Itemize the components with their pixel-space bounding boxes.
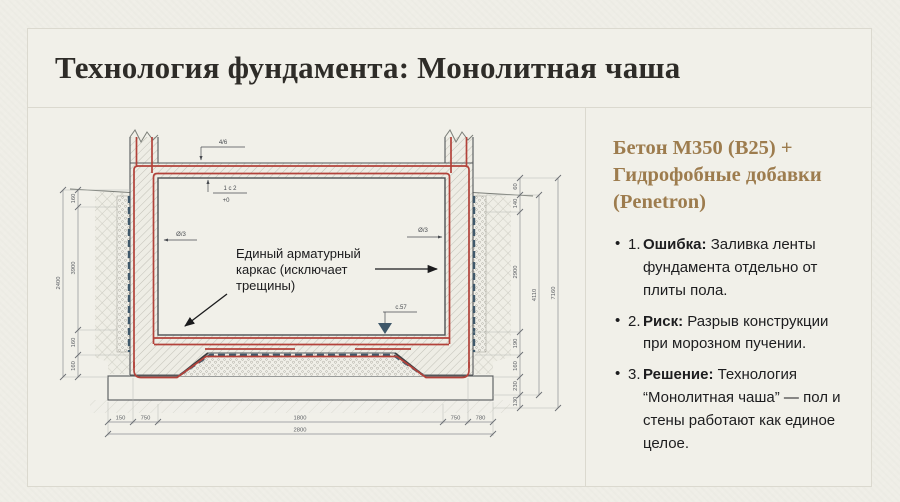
right-panel: Бетон М350 (В25) + Гидрофобные добавки (… [586, 108, 873, 487]
dim-bottom-total: 2800 [294, 428, 307, 434]
dim-left-1: 3900 [71, 262, 77, 275]
annotation-line-3: трещины) [236, 278, 295, 293]
bullet-lead: Риск: [643, 313, 683, 330]
annotation-line-1: Единый арматурный [236, 246, 361, 261]
bullet-lead: Решение: [643, 366, 713, 383]
mark-floor-level: с.57 [395, 305, 407, 311]
panel-heading: Бетон М350 (В25) + Гидрофобные добавки (… [613, 135, 855, 216]
dim-right-4: 160 [513, 361, 519, 371]
dim-right-6: 130 [513, 397, 519, 407]
bullet-icon: • [615, 310, 620, 333]
dim-bottom-3: 750 [451, 416, 461, 422]
bullet-number: 2. [628, 311, 641, 334]
mark-level-top: 1 с 2 [223, 186, 237, 192]
panel-heading-line-1: Бетон М350 (В25) + [613, 135, 855, 162]
annotation-rebar-cage: Единый арматурный каркас (исключает трещ… [185, 246, 437, 326]
dim-bottom-1: 750 [141, 416, 151, 422]
panel-heading-line-2: Гидрофобные добавки [613, 162, 855, 189]
dim-left-3: 160 [71, 361, 77, 371]
dim-right-3: 190 [513, 339, 519, 349]
bullet-icon: • [615, 363, 620, 386]
subsoil-layer [90, 400, 510, 413]
dim-left-2: 160 [71, 338, 77, 348]
dim-left-total: 2400 [56, 277, 62, 290]
dim-right-0: 60 [513, 183, 519, 189]
footing-slab [108, 376, 493, 400]
dim-right-5: 230 [513, 381, 519, 391]
panel-heading-line-3: (Penetron) [613, 189, 855, 216]
list-item: • 3. Решение: Технология “Монолитная чаш… [613, 364, 855, 455]
mark-wall-right: Ø/3 [418, 228, 428, 234]
bullet-icon: • [615, 233, 620, 256]
dim-bottom-2: 1800 [294, 416, 307, 422]
dim-right-mid-total: 4110 [532, 289, 538, 301]
dim-bottom-0: 150 [116, 416, 126, 422]
dim-right-total: 7160 [551, 287, 557, 300]
dim-right-2: 2900 [513, 266, 519, 279]
bullet-number: 3. [628, 364, 641, 387]
page-title: Технология фундамента: Монолитная чаша [55, 50, 681, 86]
foundation-section-drawing: 160 3900 160 160 2400 60 140 2900 190 16… [55, 112, 585, 464]
mark-level-zero: +0 [223, 198, 231, 204]
bullet-lead: Ошибка: [643, 236, 707, 253]
list-item: • 1. Ошибка: Заливка ленты фундамента от… [613, 234, 855, 302]
bullet-list: • 1. Ошибка: Заливка ленты фундамента от… [613, 234, 855, 455]
dim-left-0: 160 [71, 194, 77, 204]
list-item: • 2. Риск: Разрыв конструкции при морозн… [613, 311, 855, 357]
title-bar: Технология фундамента: Монолитная чаша [27, 28, 872, 108]
dim-bottom-4: 780 [476, 416, 486, 422]
annotation-line-2: каркас (исключает [236, 262, 348, 277]
dim-right-1: 140 [513, 199, 519, 209]
mark-wall-left: Ø/3 [176, 232, 186, 238]
mark-top: 4/6 [219, 140, 228, 146]
bullet-number: 1. [628, 234, 641, 257]
